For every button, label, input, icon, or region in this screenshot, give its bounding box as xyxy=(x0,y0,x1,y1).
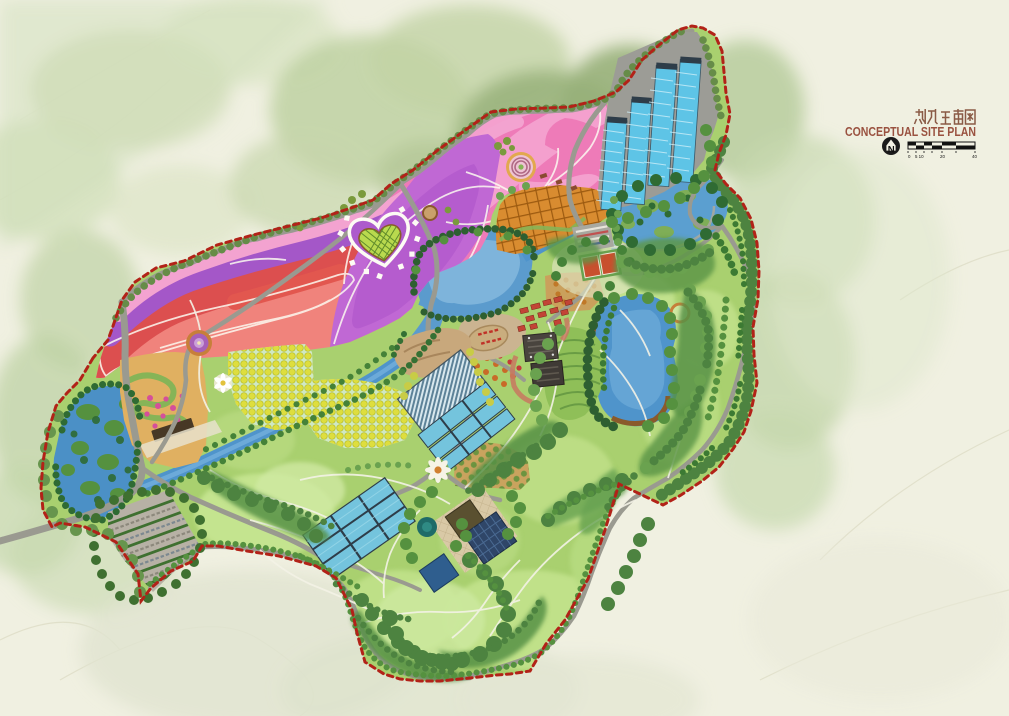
svg-text:5 10: 5 10 xyxy=(915,154,924,159)
svg-text:40: 40 xyxy=(972,154,977,159)
svg-text:20: 20 xyxy=(940,154,945,159)
svg-text:N: N xyxy=(888,144,895,155)
svg-text:CONCEPTUAL SITE PLAN: CONCEPTUAL SITE PLAN xyxy=(845,124,976,139)
